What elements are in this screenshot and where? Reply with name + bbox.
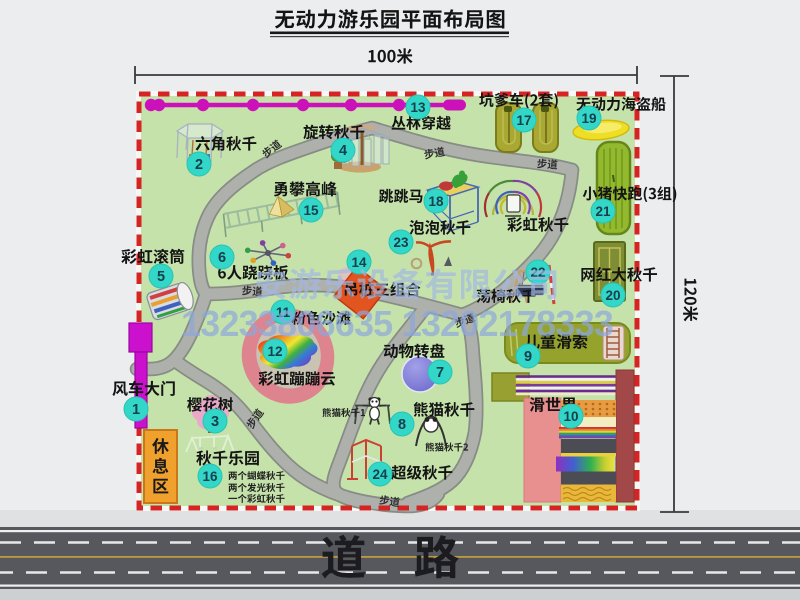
- svg-text:6: 6: [218, 250, 226, 266]
- svg-text:13233806635 13202178333: 13233806635 13202178333: [181, 303, 613, 344]
- svg-text:15: 15: [303, 203, 319, 218]
- svg-text:14: 14: [351, 255, 367, 270]
- svg-text:23: 23: [393, 235, 409, 250]
- svg-text:3: 3: [211, 414, 219, 430]
- svg-text:4: 4: [339, 143, 347, 159]
- svg-text:20: 20: [605, 288, 620, 303]
- svg-text:1: 1: [132, 402, 140, 418]
- svg-text:17: 17: [516, 113, 531, 128]
- svg-text:8: 8: [398, 417, 406, 433]
- svg-text:19: 19: [581, 111, 596, 126]
- svg-text:24: 24: [372, 467, 388, 482]
- svg-text:2: 2: [195, 157, 203, 173]
- svg-text:21: 21: [595, 204, 611, 219]
- svg-text:12: 12: [267, 344, 282, 359]
- svg-text:9: 9: [524, 349, 532, 365]
- svg-text:13: 13: [410, 100, 426, 115]
- svg-text:16: 16: [202, 469, 218, 484]
- svg-text:7: 7: [436, 365, 444, 381]
- svg-text:5: 5: [157, 269, 165, 285]
- svg-text:10: 10: [563, 409, 578, 424]
- svg-text:18: 18: [428, 194, 444, 209]
